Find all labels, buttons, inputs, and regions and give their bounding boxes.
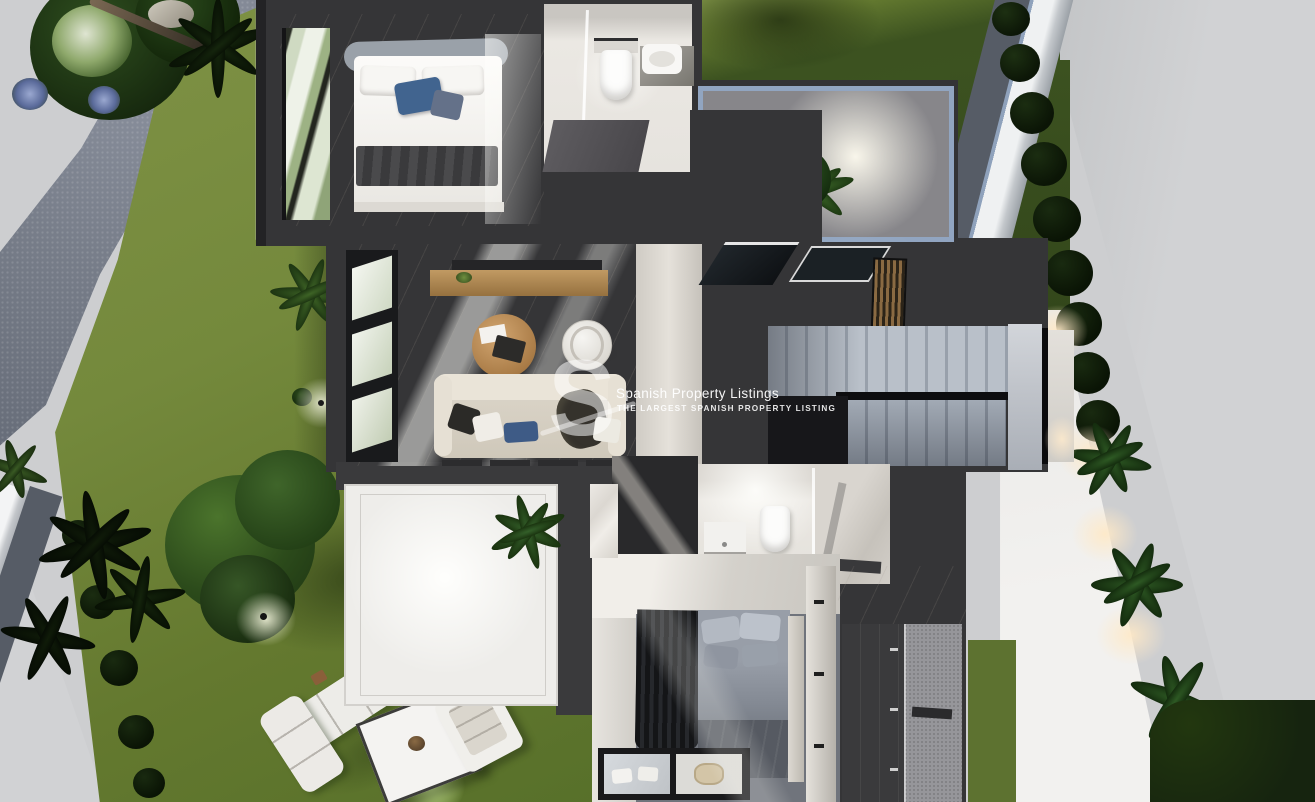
hedge-bottom-right [1150,700,1315,802]
below-chair-1 [611,768,632,784]
bathroom-1 [544,4,692,172]
bush-row-right-5 [1033,196,1081,242]
closet-room [838,566,966,802]
stair-landing [1008,324,1042,470]
lawn-spotlight-2 [260,613,267,620]
garden-lawn-sliver-bottom-right [968,640,1016,802]
sofa-pillow-blue [503,421,538,443]
closet-handle-1 [890,648,898,651]
bedroom-2 [592,554,840,802]
bush-row-left-4 [118,715,154,749]
watermark-subtitle: THE LARGEST SPANISH PROPERTY LISTING [617,404,836,413]
closet-dark-panel [842,624,904,802]
vanity-2-faucet [722,542,727,547]
house-edge-left [256,0,266,246]
bedroom-1 [280,14,544,226]
shower-drain [912,707,953,720]
toilet-2 [760,506,790,552]
closet-handle-2 [890,708,898,711]
bedroom-2-reflection [636,610,840,802]
shower-glass-edge [904,624,906,802]
bedroom-1-window [282,28,330,220]
staircase-lower-flight [848,400,1006,466]
courtyard-overhang [690,110,822,250]
bush-row-left-3 [100,650,138,686]
hallway-floor [636,244,702,466]
staircase-upper-shade [768,326,1010,396]
toilet-1-bowl [600,50,632,100]
lawn-spotlight-1 [318,400,324,406]
flower-patch-blue-2 [88,86,120,114]
washbasin-1-basin [649,51,675,67]
bush-row-right-2 [1000,44,1040,82]
wardrobe-handle-1 [814,600,824,604]
table-bowl [408,736,425,751]
window-pane-2 [352,322,392,387]
rug [442,460,622,466]
closet-room-wall [838,566,966,624]
big-tree-canopy-2 [235,450,340,550]
marble-strip-terrace-right [590,484,618,558]
bathroom-1-vanity-dark [542,120,649,172]
window-pane-3 [352,388,392,453]
bed-1-throw [356,146,498,186]
staircase-lower-shade [848,400,1006,466]
closet-handle-3 [890,768,898,771]
lawn-spotlight-2-glow [236,592,296,646]
living-window-wall [346,250,398,462]
wood-louver-screen [871,257,908,332]
bedroom-2-far-wall [592,554,840,618]
washbasin-1 [642,44,682,74]
staircase-upper-flight [768,326,1010,396]
staircase-divider [836,392,1010,400]
watermark-title: Spanish Property Listings [616,386,779,401]
bedroom-1-sun-streak [485,34,541,224]
bush-row-right-3 [1010,92,1054,134]
floorplan-render: S Spanish Property Listings THE LARGEST … [0,0,1315,802]
watermark-logo: S [548,344,614,452]
landing-wall-light [1044,416,1080,462]
path-light-3 [1072,505,1138,563]
window-pane-1 [352,256,392,321]
walk-in-shower-floor [904,624,962,802]
bed-1-foot-frame [354,202,504,212]
vanity-2 [704,522,746,552]
bush-row-left-5 [133,768,165,798]
flower-patch-blue-1 [12,78,48,110]
bush-row-right-1 [992,2,1030,36]
terrace [344,484,558,706]
console-plant [456,272,472,283]
bush-row-right-6 [1045,250,1093,296]
bush-row-right-4 [1021,142,1067,186]
